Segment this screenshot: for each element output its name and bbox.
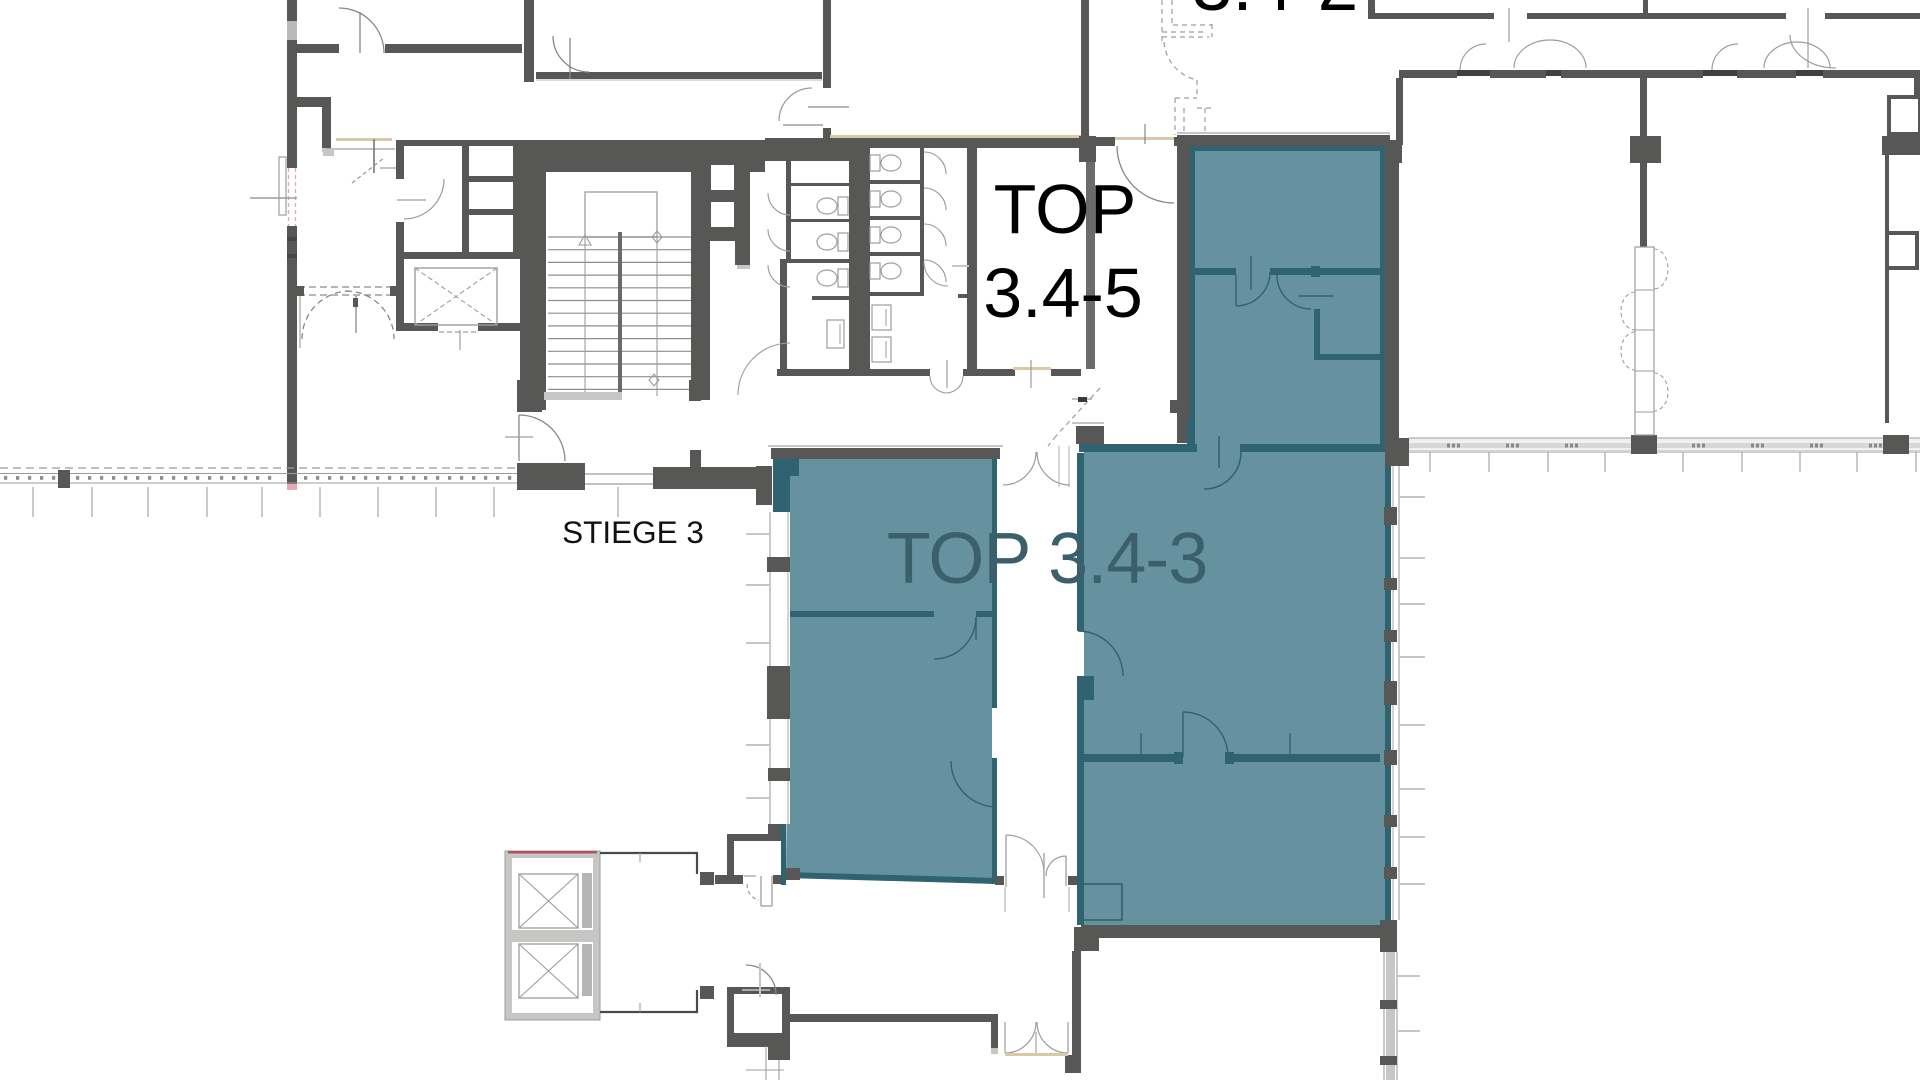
svg-text:3.4-5: 3.4-5 — [983, 254, 1143, 332]
svg-text:TOP 3.4-3: TOP 3.4-3 — [887, 519, 1208, 599]
svg-text:3.4-2: 3.4-2 — [1192, 0, 1358, 26]
svg-text:STIEGE 3: STIEGE 3 — [562, 514, 704, 550]
svg-text:TOP: TOP — [994, 170, 1137, 248]
